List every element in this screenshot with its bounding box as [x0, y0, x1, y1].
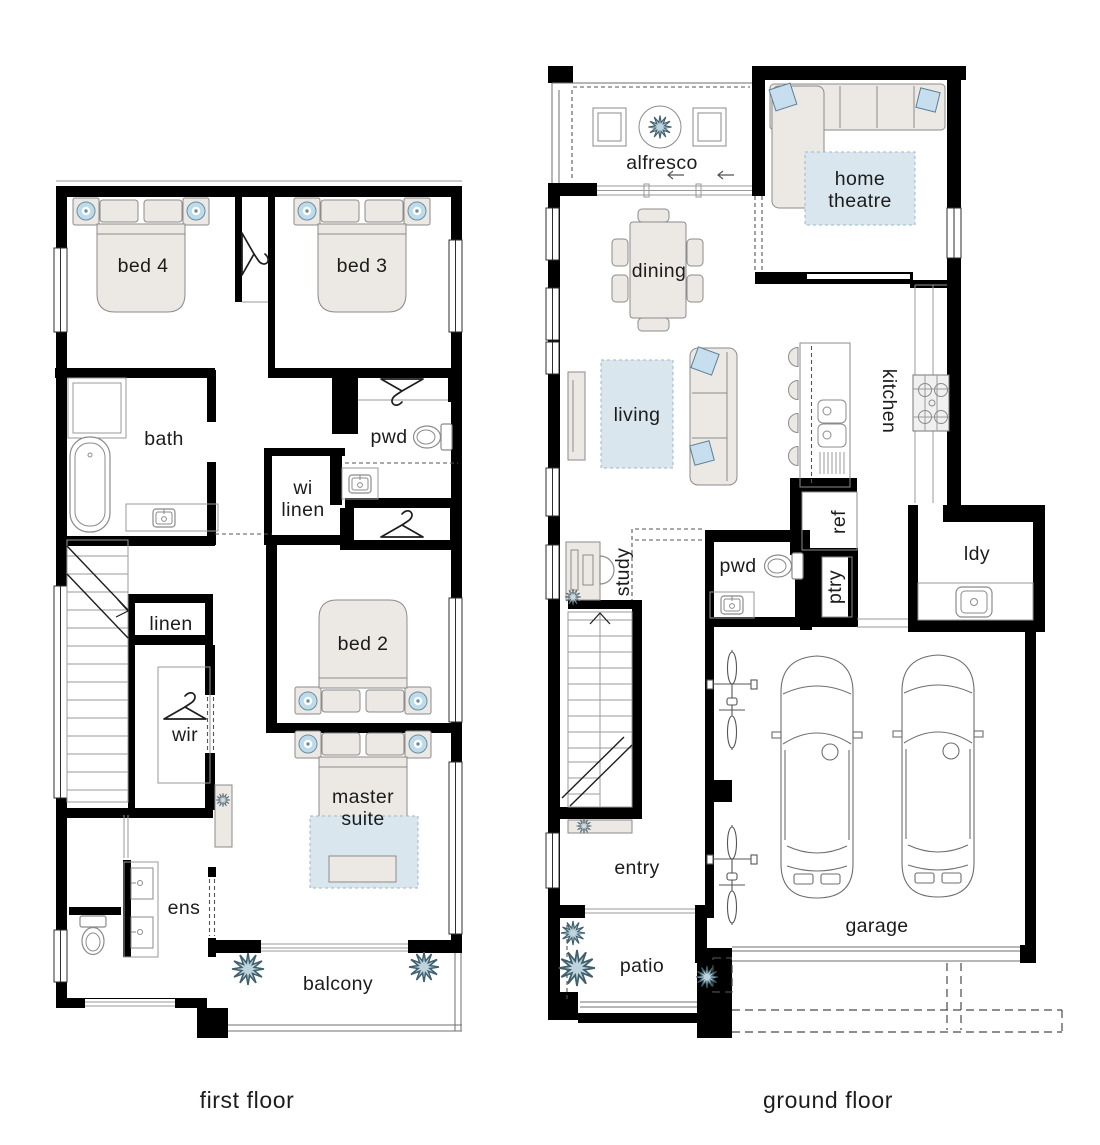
hanger-icon — [242, 233, 268, 275]
pwd-vanity-icon — [342, 468, 378, 499]
ground-floor-windows — [546, 208, 961, 888]
laundry-area — [918, 583, 1033, 620]
stairs-icon — [562, 612, 632, 834]
cooktop-icon — [913, 375, 949, 431]
toilet-icon — [414, 424, 453, 450]
chair-icon — [612, 239, 628, 266]
toilet-icon — [765, 553, 804, 579]
bed2-bed-icon — [295, 600, 431, 714]
caption-ground-floor: ground floor — [763, 1087, 893, 1113]
room-label-wi-linen-2: linen — [281, 499, 324, 521]
room-label-home-theatre-2: theatre — [828, 190, 892, 212]
room-label-bed3: bed 3 — [337, 255, 388, 277]
room-label-wi-linen-1: wi — [292, 477, 312, 499]
chair-icon — [638, 209, 669, 222]
room-label-study: study — [612, 548, 634, 597]
hanger-icon — [381, 379, 423, 405]
alfresco-area — [552, 83, 752, 197]
room-label-bed2: bed 2 — [338, 633, 389, 655]
room-label-master-2: suite — [341, 808, 384, 830]
plant-icon — [649, 116, 672, 139]
room-label-ref: ref — [828, 510, 850, 534]
ground-floor-plan: alfresco home theatre dining living kitc… — [546, 66, 1062, 1038]
plant-icon — [409, 952, 439, 982]
hanger-icon — [164, 693, 206, 719]
chair-icon — [687, 275, 703, 302]
room-label-entry: entry — [614, 857, 659, 879]
stacker-door — [597, 184, 752, 197]
room-label-dining: dining — [632, 260, 686, 282]
room-label-alfresco: alfresco — [626, 152, 697, 174]
cushion-icon — [690, 441, 714, 465]
plant-icon — [559, 950, 595, 986]
floorplan-canvas: bed 4 bed 3 bath pwd wi linen linen wir … — [0, 0, 1100, 1145]
stool-icon — [789, 381, 799, 400]
balcony-area — [85, 941, 462, 1031]
car-icon — [893, 655, 983, 897]
room-label-master-1: master — [332, 786, 394, 808]
room-label-pwd: pwd — [371, 426, 408, 448]
chair-icon — [687, 239, 703, 266]
stool-icon — [789, 348, 799, 367]
tv-unit-icon — [568, 372, 585, 460]
room-label-ldy: ldy — [964, 543, 990, 565]
bath-vanity-icon — [126, 504, 218, 531]
shower-icon — [68, 378, 126, 438]
room-label-wir: wir — [171, 724, 198, 746]
room-label-bed4: bed 4 — [118, 255, 169, 277]
plant-icon — [561, 921, 585, 945]
ottoman-icon — [329, 856, 396, 882]
stairs-icon — [67, 540, 128, 802]
room-label-kitchen: kitchen — [878, 369, 900, 434]
room-label-balcony: balcony — [303, 973, 373, 995]
chair-icon — [612, 275, 628, 302]
room-label-bath: bath — [144, 428, 184, 450]
garage-door — [732, 945, 1020, 962]
cushion-icon — [916, 88, 940, 112]
room-label-patio: patio — [620, 955, 664, 977]
toilet-icon — [80, 916, 106, 955]
ens-shower-screen — [124, 815, 128, 858]
room-label-garage: garage — [845, 915, 908, 937]
stool-icon — [789, 414, 799, 433]
study-area — [565, 529, 705, 605]
car-icon — [772, 656, 862, 898]
room-label-living: living — [614, 404, 661, 426]
room-label-ptry: ptry — [824, 570, 846, 604]
hanger-icon — [381, 511, 423, 537]
room-label-home-theatre-1: home — [835, 168, 885, 190]
bathtub-icon — [70, 437, 110, 532]
garage-area — [707, 650, 1062, 1032]
room-label-ens: ens — [168, 897, 201, 919]
chair-icon — [638, 318, 669, 331]
plant-icon — [232, 953, 264, 985]
floor-plan-page: bed 4 bed 3 bath pwd wi linen linen wir … — [0, 0, 1100, 1145]
caption-first-floor: first floor — [200, 1087, 295, 1113]
stool-icon — [789, 447, 799, 466]
room-label-linen: linen — [149, 613, 192, 635]
first-floor-plan: bed 4 bed 3 bath pwd wi linen linen wir … — [54, 181, 462, 1038]
room-label-pwd-ground: pwd — [720, 555, 757, 577]
bike-icon — [707, 825, 757, 925]
bike-icon — [707, 650, 757, 750]
